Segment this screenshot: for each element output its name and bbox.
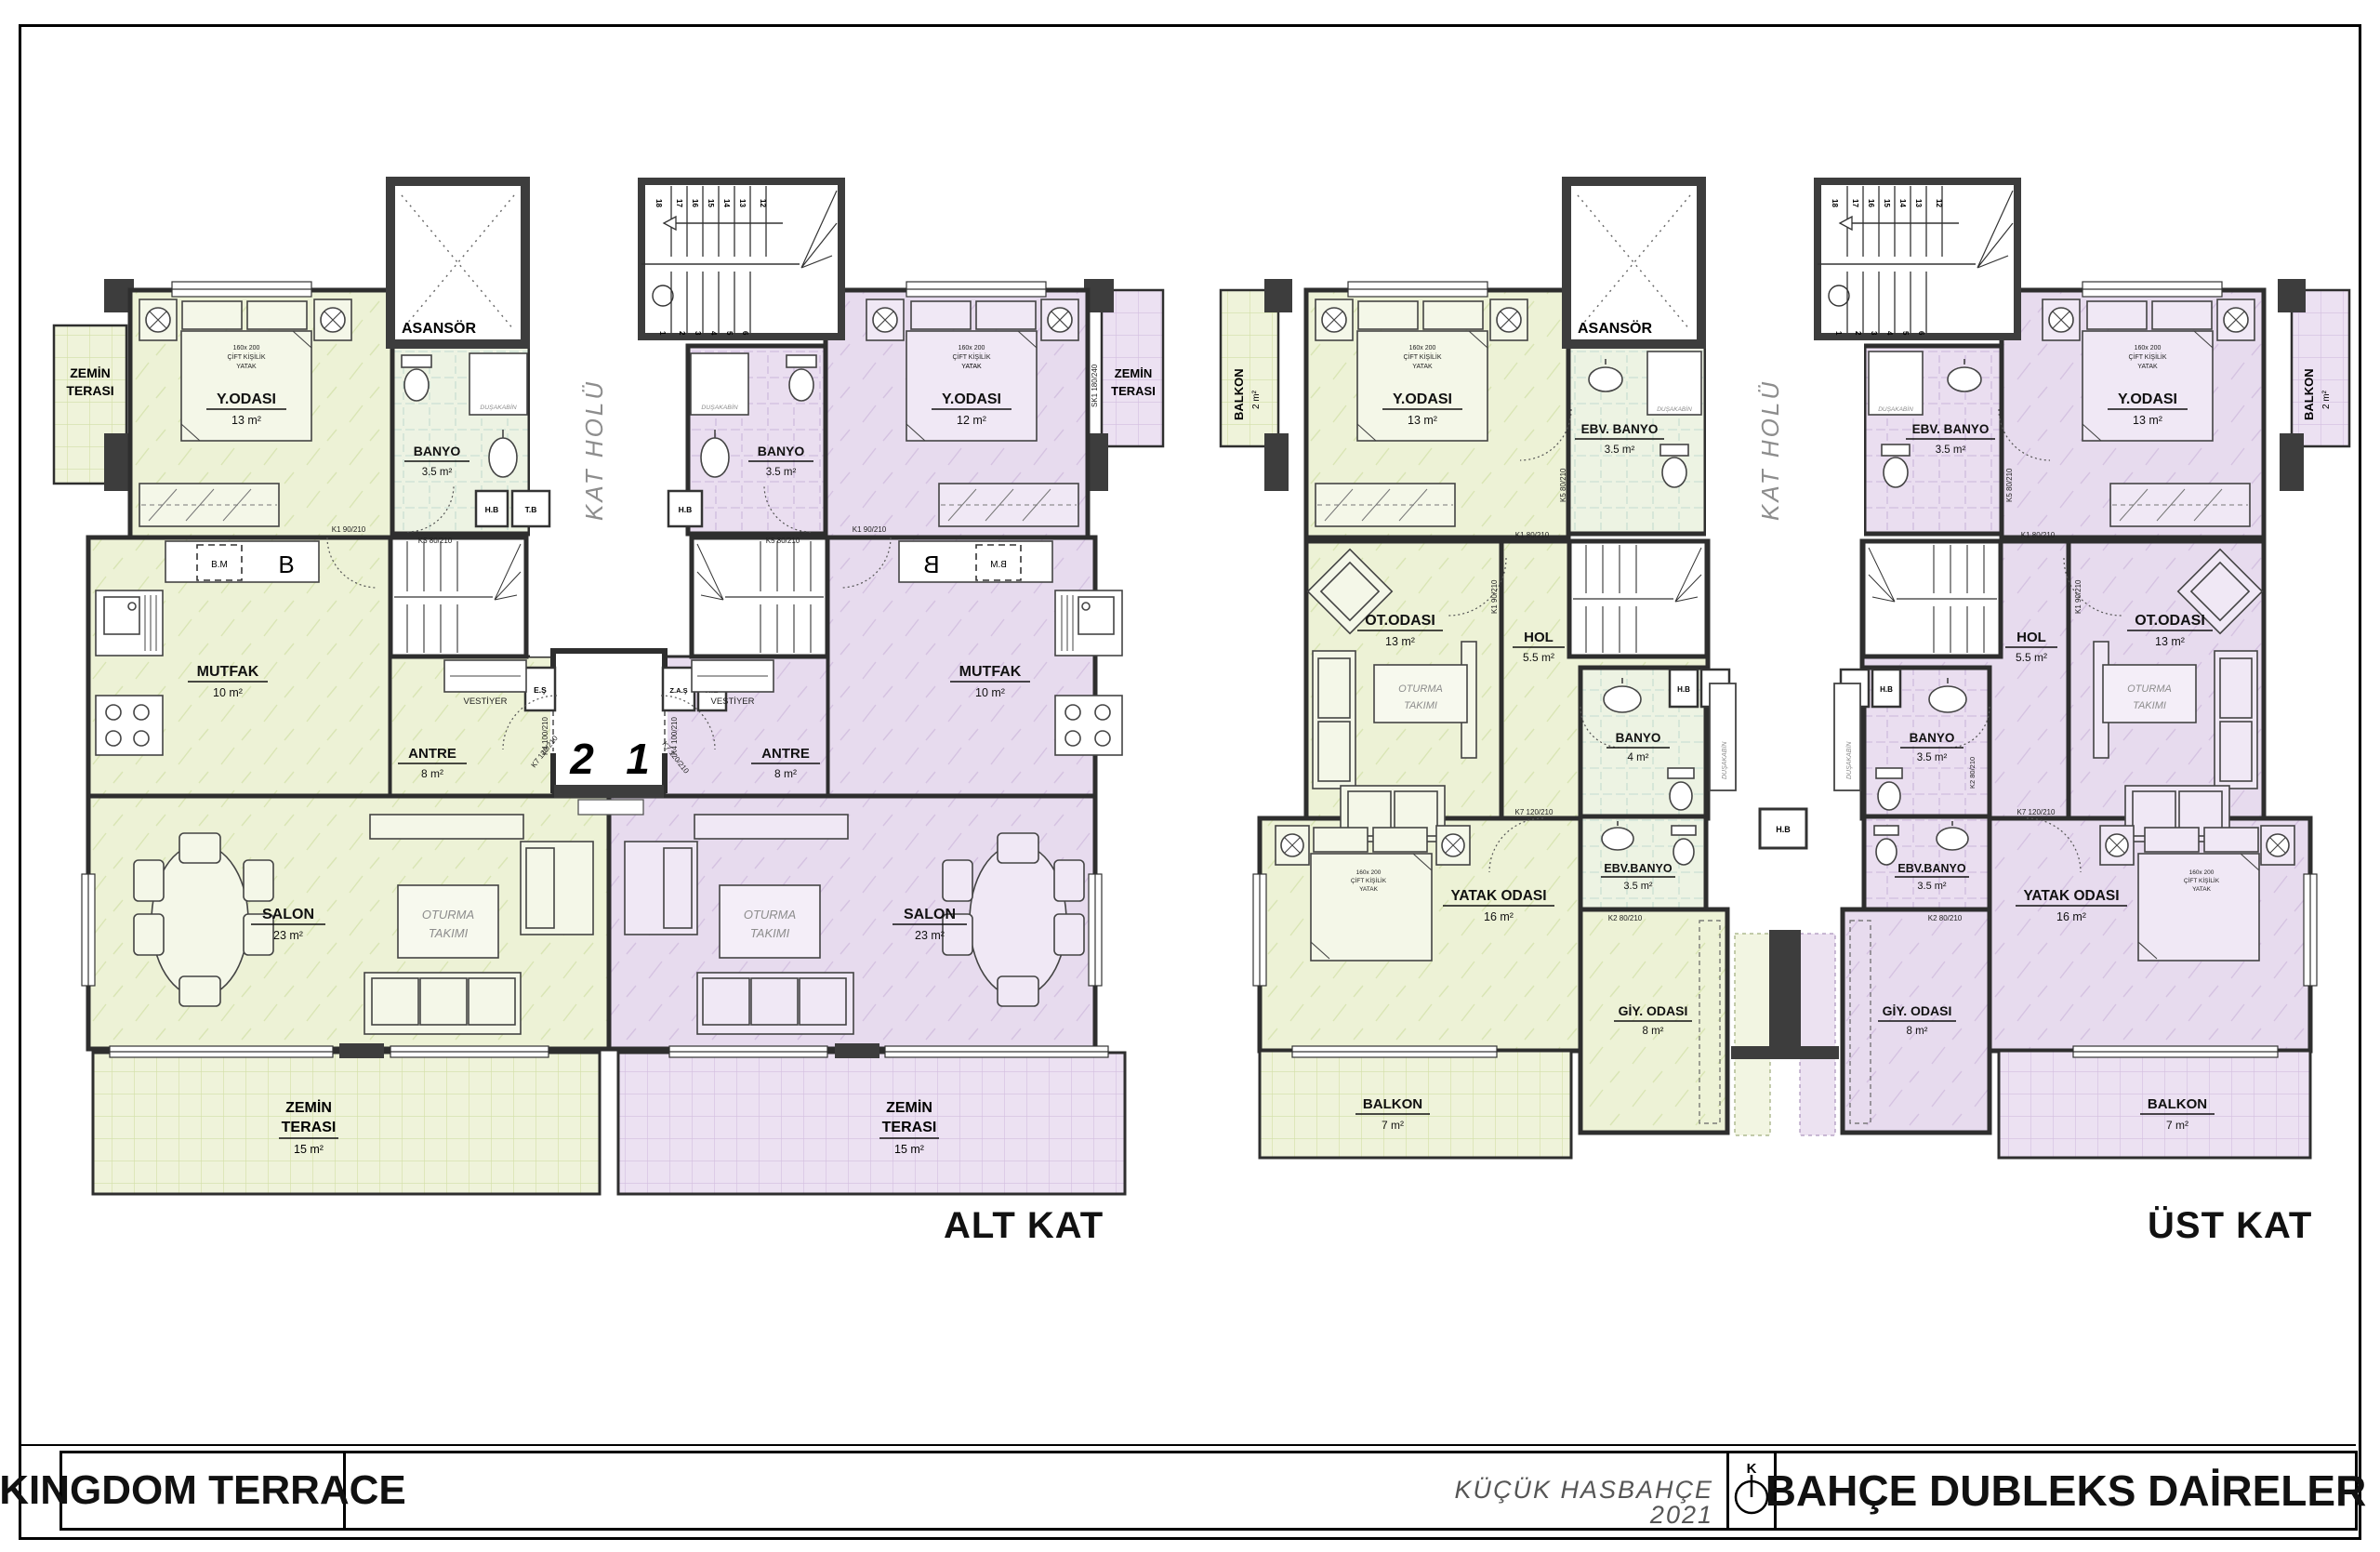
closet-label: E.Ş — [534, 685, 547, 695]
closet-label: Z.A.Ş — [669, 686, 687, 695]
balkon-area: 7 m² — [2166, 1119, 2188, 1132]
room-area: 13 m² — [1408, 414, 1437, 427]
room-name: OT.ODASI — [2135, 613, 2205, 629]
svg-text:OTURMA: OTURMA — [1398, 683, 1443, 695]
svg-text:K5 80/210: K5 80/210 — [1559, 468, 1567, 502]
wardrobe-purple — [939, 484, 1078, 526]
balkon-label: BALKON — [1232, 368, 1246, 420]
light-well: H.B — [1731, 809, 1839, 1139]
terrace-label: TERASI — [1111, 384, 1156, 398]
room-area: 16 m² — [2056, 910, 2086, 923]
room-area: 13 m² — [1385, 635, 1415, 648]
svg-text:YATAK: YATAK — [1359, 886, 1379, 893]
terrace-label: ZEMİN — [1115, 366, 1152, 380]
dusakabin-label: DUŞAKABİN — [701, 404, 737, 411]
room-name: MUTFAK — [197, 664, 259, 680]
stair-number: 16 — [1867, 199, 1875, 207]
room-area: 3.5 m² — [1623, 881, 1653, 892]
sheet-title: BAHÇE DUBLEKS DAİRELER — [1777, 1453, 2355, 1528]
svg-text:TAKIMI: TAKIMI — [2133, 700, 2166, 711]
svg-text:K1 90/210: K1 90/210 — [332, 525, 366, 534]
room-name: MUTFAK — [959, 664, 1022, 680]
stair-number: 18 — [1831, 199, 1839, 207]
room-name: BANYO — [758, 444, 805, 458]
svg-text:160x 200: 160x 200 — [2189, 869, 2215, 876]
room-area: 3.5 m² — [766, 467, 797, 478]
unit-stairs-purple — [1863, 541, 2001, 657]
room-name: BANYO — [1616, 731, 1661, 745]
elevator-asansor: ASANSÖR — [390, 181, 525, 344]
balkon-area: 7 m² — [1382, 1119, 1404, 1132]
svg-text:K7 120/210: K7 120/210 — [2017, 808, 2056, 816]
room-area: 3.5 m² — [1917, 881, 1947, 892]
room-area: 3.5 m² — [1605, 444, 1635, 456]
terrace-label: ZEMİN — [285, 1099, 332, 1116]
terrace-label: TERASI — [882, 1120, 937, 1135]
room-name: SALON — [262, 907, 314, 922]
room-name: OT.ODASI — [1365, 613, 1435, 629]
dusakabin-label: DUŞAKABİN — [1657, 405, 1692, 413]
svg-text:160x 200: 160x 200 — [1409, 345, 1436, 352]
room-name: BANYO — [1910, 731, 1955, 745]
room-area: 13 m² — [2133, 414, 2162, 427]
terrace-area: 15 m² — [894, 1143, 924, 1156]
stair-number: 16 — [691, 199, 699, 207]
floorplan-ust-kat: BALKON 2 m² BALKON 2 m² BALKON — [1209, 93, 2366, 1255]
stair-number: 5 — [1901, 331, 1910, 336]
svg-text:ÇİFT KİŞİLİK: ÇİFT KİŞİLİK — [227, 352, 265, 361]
room-name: BANYO — [414, 444, 461, 458]
svg-text:K5 80/210: K5 80/210 — [2005, 468, 2014, 502]
stair-number: 13 — [738, 199, 747, 207]
svg-text:YATAK: YATAK — [1412, 364, 1433, 370]
terrace-label: TERASI — [282, 1120, 337, 1135]
core-stairs: 18 17 16 15 14 13 12 1 2 3 4 5 6 — [1818, 181, 2017, 337]
svg-text:160x 200: 160x 200 — [959, 345, 985, 352]
room-area: 12 m² — [957, 414, 986, 427]
svg-text:K2 80/210: K2 80/210 — [1968, 757, 1977, 789]
closet-label: H.B — [1880, 685, 1893, 694]
room-area: 3.5 m² — [1936, 444, 1966, 456]
svg-text:K5 80/210: K5 80/210 — [418, 537, 453, 545]
unit-stairs-purple — [692, 537, 827, 657]
stair-number: 4 — [1885, 331, 1894, 336]
kat-holu-label: KAT HOLÜ — [580, 379, 608, 521]
room-name: EBV. BANYO — [1912, 422, 1990, 436]
svg-text:ÇİFT KİŞİLİK: ÇİFT KİŞİLİK — [1403, 352, 1441, 361]
room-name: GİY. ODASI — [1883, 1003, 1952, 1018]
svg-text:OTURMA: OTURMA — [744, 908, 796, 922]
vestiyer-label: VESTİYER — [711, 696, 755, 707]
floorplan-alt-kat: ZEMİN TERASI ZEMİN TERASI SK1 180/240 ZE… — [37, 93, 1181, 1255]
room-name: ANTRE — [408, 746, 456, 762]
svg-text:K1 80/210: K1 80/210 — [1515, 531, 1550, 539]
dusakabin-label: DUŞAKABİN — [1845, 741, 1853, 779]
wardrobe-green — [1316, 484, 1455, 526]
svg-text:K2 80/210: K2 80/210 — [1608, 914, 1643, 922]
floor-label-ust-kat: ÜST KAT — [2148, 1205, 2312, 1247]
svg-text:YATAK: YATAK — [236, 364, 257, 370]
terrace-label: TERASI — [66, 383, 113, 398]
balkon-bottom-purple: BALKON 7 m² — [1999, 1051, 2310, 1158]
stair-number: 14 — [1898, 199, 1907, 207]
balkon-bottom-green: BALKON 7 m² — [1260, 1051, 1571, 1158]
balkon-label: BALKON — [1363, 1096, 1422, 1112]
room-area: 13 m² — [231, 414, 261, 427]
room-area: 23 m² — [273, 929, 303, 942]
balkon-label: BALKON — [2302, 368, 2316, 420]
balkon-top-green: BALKON 2 m² — [1221, 279, 1292, 491]
svg-text:TAKIMI: TAKIMI — [429, 926, 469, 940]
stair-number: 15 — [707, 199, 715, 207]
room-name: YATAK ODASI — [2023, 888, 2119, 904]
wardrobe-green — [139, 484, 279, 526]
room-area: 5.5 m² — [2016, 651, 2047, 664]
stair-number: 17 — [1851, 199, 1859, 207]
stair-number: 18 — [654, 199, 663, 207]
closet-label: H.B — [679, 505, 693, 514]
terrace-area: 15 m² — [294, 1143, 324, 1156]
stair-number: 14 — [722, 199, 731, 207]
svg-text:K1 90/210: K1 90/210 — [1490, 579, 1499, 614]
room-name: Y.ODASI — [1393, 391, 1452, 407]
wardrobe-purple — [2110, 484, 2250, 526]
closet-boxes: H.B E.Ş H.B E.Ş — [1670, 670, 1900, 707]
stair-number: 2 — [1854, 331, 1862, 336]
room-area: 4 m² — [1628, 752, 1649, 763]
door-label-sk1: SK1 180/240 — [1091, 364, 1099, 407]
unit-stairs-green — [1569, 541, 1707, 657]
stair-number: 12 — [759, 199, 767, 207]
room-area: 8 m² — [1907, 1026, 1928, 1037]
note-line2: 2021 — [1650, 1503, 1713, 1528]
dusakabin-label: DUŞAKABİN — [480, 404, 516, 411]
corridor-kat-holu — [1706, 337, 1864, 537]
svg-text:OTURMA: OTURMA — [422, 908, 474, 922]
svg-text:ÇİFT KİŞİLİK: ÇİFT KİŞİLİK — [952, 352, 990, 361]
room-name: Y.ODASI — [942, 391, 1001, 407]
room-area: 8 m² — [421, 767, 443, 780]
balkon-area: 2 m² — [1251, 390, 1262, 409]
balkon-area: 2 m² — [2321, 390, 2332, 409]
svg-text:K2 80/210: K2 80/210 — [1928, 914, 1963, 922]
room-area: 10 m² — [975, 686, 1005, 699]
room-name: SALON — [904, 907, 956, 922]
bm-label: B.M — [211, 560, 228, 570]
stair-number: 4 — [709, 331, 718, 336]
dusakabin-label: DUŞAKABİN — [1878, 405, 1913, 413]
closet-label: T.B — [525, 505, 537, 514]
room-name: EBV.BANYO — [1897, 862, 1965, 875]
room-area: 3.5 m² — [422, 467, 453, 478]
svg-text:YATAK: YATAK — [2192, 886, 2212, 893]
stair-number: 3 — [1870, 331, 1878, 336]
elevator-asansor: ASANSÖR — [1567, 181, 1701, 344]
room-area: 10 m² — [213, 686, 243, 699]
closet-label: H.B — [485, 505, 499, 514]
stair-number: 6 — [1917, 331, 1925, 336]
svg-text:YATAK: YATAK — [2137, 364, 2158, 370]
drawing-sheet: ZEMİN TERASI ZEMİN TERASI SK1 180/240 ZE… — [0, 0, 2380, 1552]
room-area: 13 m² — [2155, 635, 2185, 648]
unit-number: 1 — [626, 735, 650, 783]
svg-text:TAKIMI: TAKIMI — [1404, 700, 1437, 711]
stair-number: 13 — [1914, 199, 1923, 207]
room-name: GİY. ODASI — [1619, 1003, 1688, 1018]
unit-number: 2 — [569, 735, 594, 783]
core-stairs: 18 17 16 15 14 13 12 1 2 3 4 5 6 — [641, 181, 841, 337]
stair-number: 15 — [1883, 199, 1891, 207]
room-area: 23 m² — [915, 929, 945, 942]
terrace-bottom-left: ZEMİN TERASI 15 m² — [93, 1053, 600, 1194]
terrace-label: ZEMİN — [70, 365, 111, 380]
room-name: EBV. BANYO — [1581, 422, 1659, 436]
room-name: Y.ODASI — [217, 391, 276, 407]
terrace-label: ZEMİN — [886, 1099, 932, 1116]
room-name: HOL — [2016, 630, 2046, 645]
project-title: KINGDOM TERRACE — [62, 1453, 346, 1528]
floor-label-alt-kat: ALT KAT — [944, 1205, 1104, 1247]
b-label: B — [923, 550, 939, 578]
room-name: HOL — [1524, 630, 1554, 645]
balkon-label: BALKON — [2148, 1096, 2207, 1112]
svg-text:160x 200: 160x 200 — [2135, 345, 2162, 352]
wall-pillar — [835, 1043, 879, 1058]
svg-text:ÇİFT KİŞİLİK: ÇİFT KİŞİLİK — [1351, 876, 1387, 884]
svg-text:160x 200: 160x 200 — [1356, 869, 1382, 876]
room-name: YATAK ODASI — [1450, 888, 1546, 904]
b-label: B — [278, 550, 294, 578]
elevator-label: ASANSÖR — [1578, 319, 1652, 337]
room-area: 8 m² — [774, 767, 797, 780]
stair-number: 2 — [678, 331, 686, 336]
terrace-top-left: ZEMİN TERASI — [54, 279, 134, 491]
title-band: KINGDOM TERRACE KÜÇÜK HASBAHÇE 2021 K BA… — [59, 1451, 2358, 1531]
stair-number: 1 — [1834, 331, 1843, 336]
kat-holu-label: KAT HOLÜ — [1756, 379, 1784, 521]
stair-number: 6 — [741, 331, 749, 336]
svg-text:TAKIMI: TAKIMI — [750, 926, 790, 940]
svg-text:ÇİFT KİŞİLİK: ÇİFT KİŞİLİK — [2128, 352, 2166, 361]
svg-text:160x 200: 160x 200 — [233, 345, 260, 352]
closet-label: H.B — [1776, 825, 1791, 834]
title-band-topline — [21, 1444, 2356, 1446]
svg-text:YATAK: YATAK — [961, 364, 982, 370]
balkon-top-purple: BALKON 2 m² — [2278, 279, 2349, 491]
entry-lobby: 2 1 K4 100/210 K4 100/210 — [541, 651, 679, 815]
compass-letter: K — [1747, 1461, 1757, 1477]
room-name: ANTRE — [761, 746, 810, 762]
svg-text:ÇİFT KİŞİLİK: ÇİFT KİŞİLİK — [2184, 876, 2220, 884]
room-area: 8 m² — [1643, 1026, 1664, 1037]
drawing-note: KÜÇÜK HASBAHÇE 2021 — [346, 1453, 1726, 1528]
svg-text:K1 80/210: K1 80/210 — [2021, 531, 2056, 539]
svg-text:K5 80/210: K5 80/210 — [766, 537, 800, 545]
stair-number: 3 — [694, 331, 702, 336]
dusakabin-label: DUŞAKABİN — [1721, 741, 1728, 779]
note-line1: KÜÇÜK HASBAHÇE — [1454, 1478, 1713, 1503]
room-name: Y.ODASI — [2118, 391, 2177, 407]
stair-number: 5 — [725, 331, 734, 336]
room-area: 16 m² — [1484, 910, 1514, 923]
terrace-bottom-right: ZEMİN TERASI 15 m² — [618, 1053, 1125, 1194]
svg-text:K1 90/210: K1 90/210 — [853, 525, 887, 534]
svg-text:K1 90/210: K1 90/210 — [2074, 579, 2082, 614]
svg-text:K7 120/210: K7 120/210 — [1515, 808, 1554, 816]
room-area: 3.5 m² — [1917, 752, 1948, 763]
unit-stairs-green — [390, 537, 526, 657]
vestiyer-label: VESTİYER — [464, 696, 508, 707]
terrace-top-right: ZEMİN TERASI SK1 180/240 — [1084, 279, 1163, 491]
bm-label: B.M — [990, 560, 1007, 570]
shower-strips: DUŞAKABİN DUŞAKABİN — [1710, 683, 1860, 790]
stair-number: 12 — [1935, 199, 1943, 207]
svg-text:OTURMA: OTURMA — [2127, 683, 2172, 695]
stair-number: 1 — [658, 331, 667, 336]
stair-number: 17 — [675, 199, 683, 207]
elevator-label: ASANSÖR — [402, 319, 476, 337]
closet-label: H.B — [1677, 685, 1690, 694]
room-name: EBV.BANYO — [1604, 862, 1672, 875]
wall-pillar — [339, 1043, 384, 1058]
room-area: 5.5 m² — [1523, 651, 1554, 664]
